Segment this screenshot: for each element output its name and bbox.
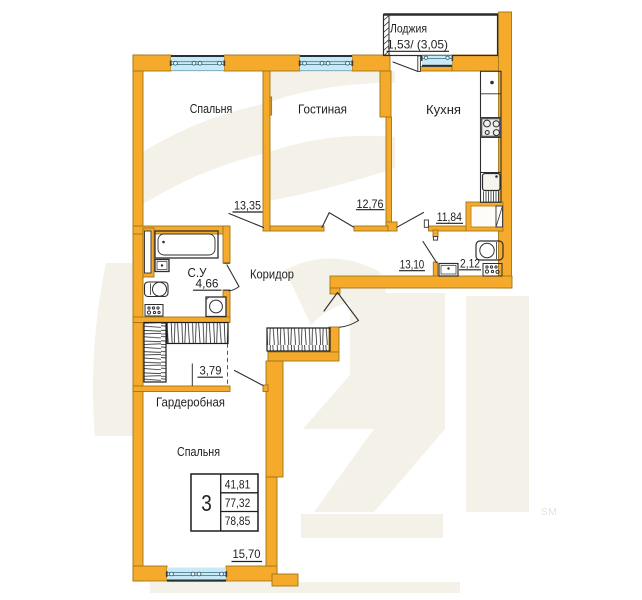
svg-text:2,12: 2,12	[460, 256, 480, 270]
svg-text:SM: SM	[541, 506, 558, 518]
svg-text:Кухня: Кухня	[426, 102, 461, 117]
svg-text:Спальня: Спальня	[190, 101, 233, 116]
svg-text:13,35: 13,35	[234, 198, 261, 212]
svg-text:Гардеробная: Гардеробная	[156, 395, 225, 410]
svg-text:11,84: 11,84	[437, 210, 462, 224]
svg-text:Коридор: Коридор	[250, 266, 294, 281]
svg-text:4,66: 4,66	[196, 277, 219, 291]
svg-text:41,81: 41,81	[225, 478, 251, 492]
svg-text:3: 3	[201, 490, 212, 516]
svg-text:15,70: 15,70	[233, 547, 261, 561]
svg-text:Спальня: Спальня	[177, 444, 220, 459]
svg-text:Лоджия: Лоджия	[390, 24, 427, 36]
svg-text:12,76: 12,76	[357, 197, 384, 211]
svg-text:78,85: 78,85	[225, 514, 251, 528]
svg-text:Гостиная: Гостиная	[298, 101, 347, 116]
svg-text:13,10: 13,10	[400, 257, 425, 271]
svg-text:3,79: 3,79	[200, 364, 222, 378]
svg-text:77,32: 77,32	[225, 496, 251, 510]
svg-text:1,53/ (3,05): 1,53/ (3,05)	[387, 38, 448, 52]
